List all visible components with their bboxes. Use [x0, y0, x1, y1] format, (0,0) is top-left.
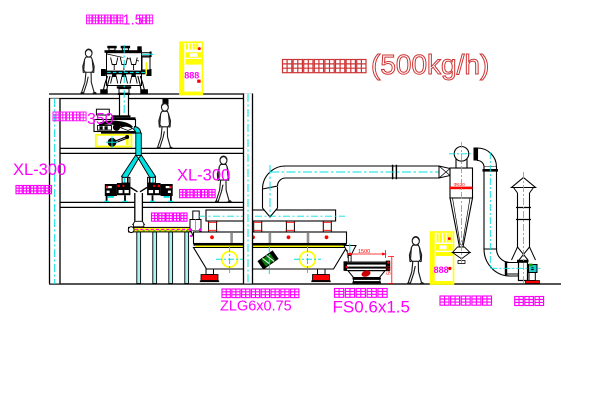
svg-text:FS0.6x1.5: FS0.6x1.5: [333, 298, 411, 317]
svg-text:(500kg/h): (500kg/h): [371, 49, 489, 80]
svg-text:ZLG6x0.75: ZLG6x0.75: [220, 299, 292, 315]
svg-text:888: 888: [184, 71, 199, 81]
svg-text:1500: 1500: [358, 249, 370, 255]
svg-text:540: 540: [387, 266, 393, 275]
svg-text:350: 350: [87, 111, 114, 128]
svg-text:XL-300: XL-300: [13, 161, 66, 179]
svg-text:XL-300: XL-300: [177, 167, 230, 185]
svg-text:Φ630: Φ630: [454, 182, 466, 187]
svg-text:888: 888: [434, 265, 449, 275]
